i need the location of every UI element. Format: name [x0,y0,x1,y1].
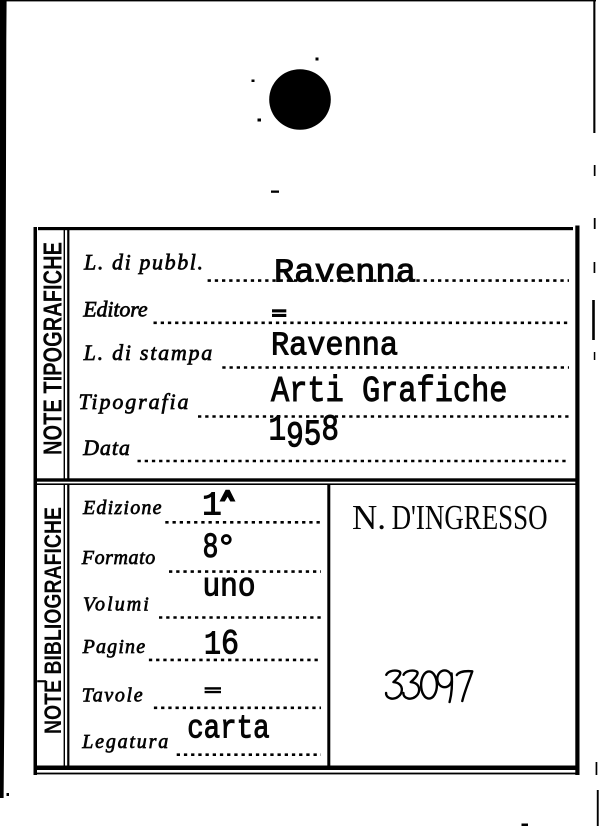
svg-text:Editore: Editore [82,297,148,322]
svg-text:carta: carta [187,711,270,748]
svg-text:L. di stampa: L. di stampa [83,340,213,365]
svg-text:Legatura: Legatura [81,731,168,753]
svg-text:1958: 1958 [269,410,340,458]
svg-text:Pagine: Pagine [82,636,146,658]
svg-text:Data: Data [82,435,130,460]
svg-text:Volumi: Volumi [83,593,149,615]
svg-text:L. di pubbl.: L. di pubbl. [83,250,203,275]
svg-text:Ravenna: Ravenna [274,255,416,292]
svg-text:NOTE BIBLIOGRAFICHE: NOTE BIBLIOGRAFICHE [40,507,67,734]
svg-text:Tavole: Tavole [82,685,143,707]
svg-text:Ravenna: Ravenna [271,328,398,365]
svg-text:Edizione: Edizione [82,497,162,519]
svg-text:NOTE TIPOGRAFICHE: NOTE TIPOGRAFICHE [38,242,68,455]
svg-text:8: 8 [203,528,219,568]
svg-text:Arti Grafiche: Arti Grafiche [271,371,508,412]
svg-text:1: 1 [202,488,222,525]
svg-text:D'INGRESSO: D'INGRESSO [392,498,548,537]
svg-text:uno: uno [203,569,256,606]
svg-text:Formato: Formato [81,547,155,569]
svg-text:N.: N. [352,498,386,537]
svg-text:16: 16 [204,624,239,664]
svg-text:Tipografia: Tipografia [79,389,189,414]
